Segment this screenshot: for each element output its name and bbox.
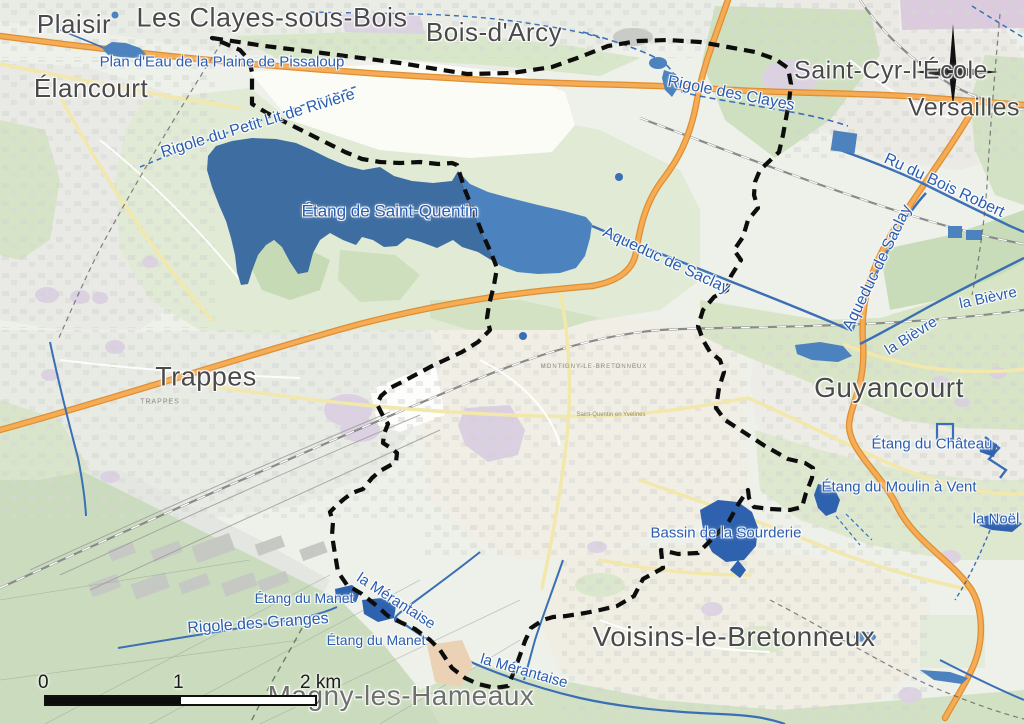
water-label-etang-du-manet-1: Étang du Manet — [255, 591, 354, 605]
minor-label-saint-quentin-en-yvelines: Saint-Quentin en Yvelines — [577, 412, 646, 418]
scale-tick-2km: 2 km — [300, 672, 341, 694]
water-label-bassin-de-la-sourderie: Bassin de la Sourderie — [651, 526, 802, 541]
scale-tick-0: 0 — [38, 672, 49, 694]
city-label-les-clayes-sous-bois: Les Clayes-sous-Bois — [136, 5, 407, 32]
city-label-saint-cyr-l-ecole: Saint-Cyr-l'École — [794, 59, 988, 84]
minor-label-trappes: TRAPPES — [140, 399, 180, 406]
city-label-versailles: Versailles — [908, 96, 1020, 121]
city-label-trappes: Trappes — [155, 364, 257, 391]
scale-bar-filled-segment — [46, 697, 181, 704]
water-label-la-noel: la Noël — [973, 512, 1020, 527]
water-label-plan-d-eau-pissaloup: Plan d'Eau de la Plaine de Pissaloup — [100, 55, 345, 70]
scale-bar — [44, 695, 317, 706]
scale-tick-1: 1 — [173, 672, 184, 694]
basemap — [0, 0, 1024, 724]
city-label-guyancourt: Guyancourt — [814, 374, 964, 402]
water-label-etang-du-moulin-a-vent: Étang du Moulin à Vent — [821, 480, 976, 495]
city-label-plaisir: Plaisir — [37, 11, 111, 37]
city-label-elancourt: Élancourt — [34, 75, 148, 101]
city-label-voisins-le-bretonneux: Voisins-le-Bretonneux — [593, 623, 876, 651]
water-label-etang-du-chateau: Étang du Château — [872, 437, 993, 452]
city-label-bois-d-arcy: Bois-d'Arcy — [426, 19, 562, 45]
map-image: Plaisir Les Clayes-sous-Bois Bois-d'Arcy… — [0, 0, 1024, 724]
minor-label-montigny: MONTIGNY-LE-BRETONNEUX — [541, 364, 648, 370]
water-label-etang-saint-quentin: Étang de Saint-Quentin — [302, 203, 479, 220]
water-label-etang-du-manet-2: Étang du Manet — [327, 633, 426, 647]
